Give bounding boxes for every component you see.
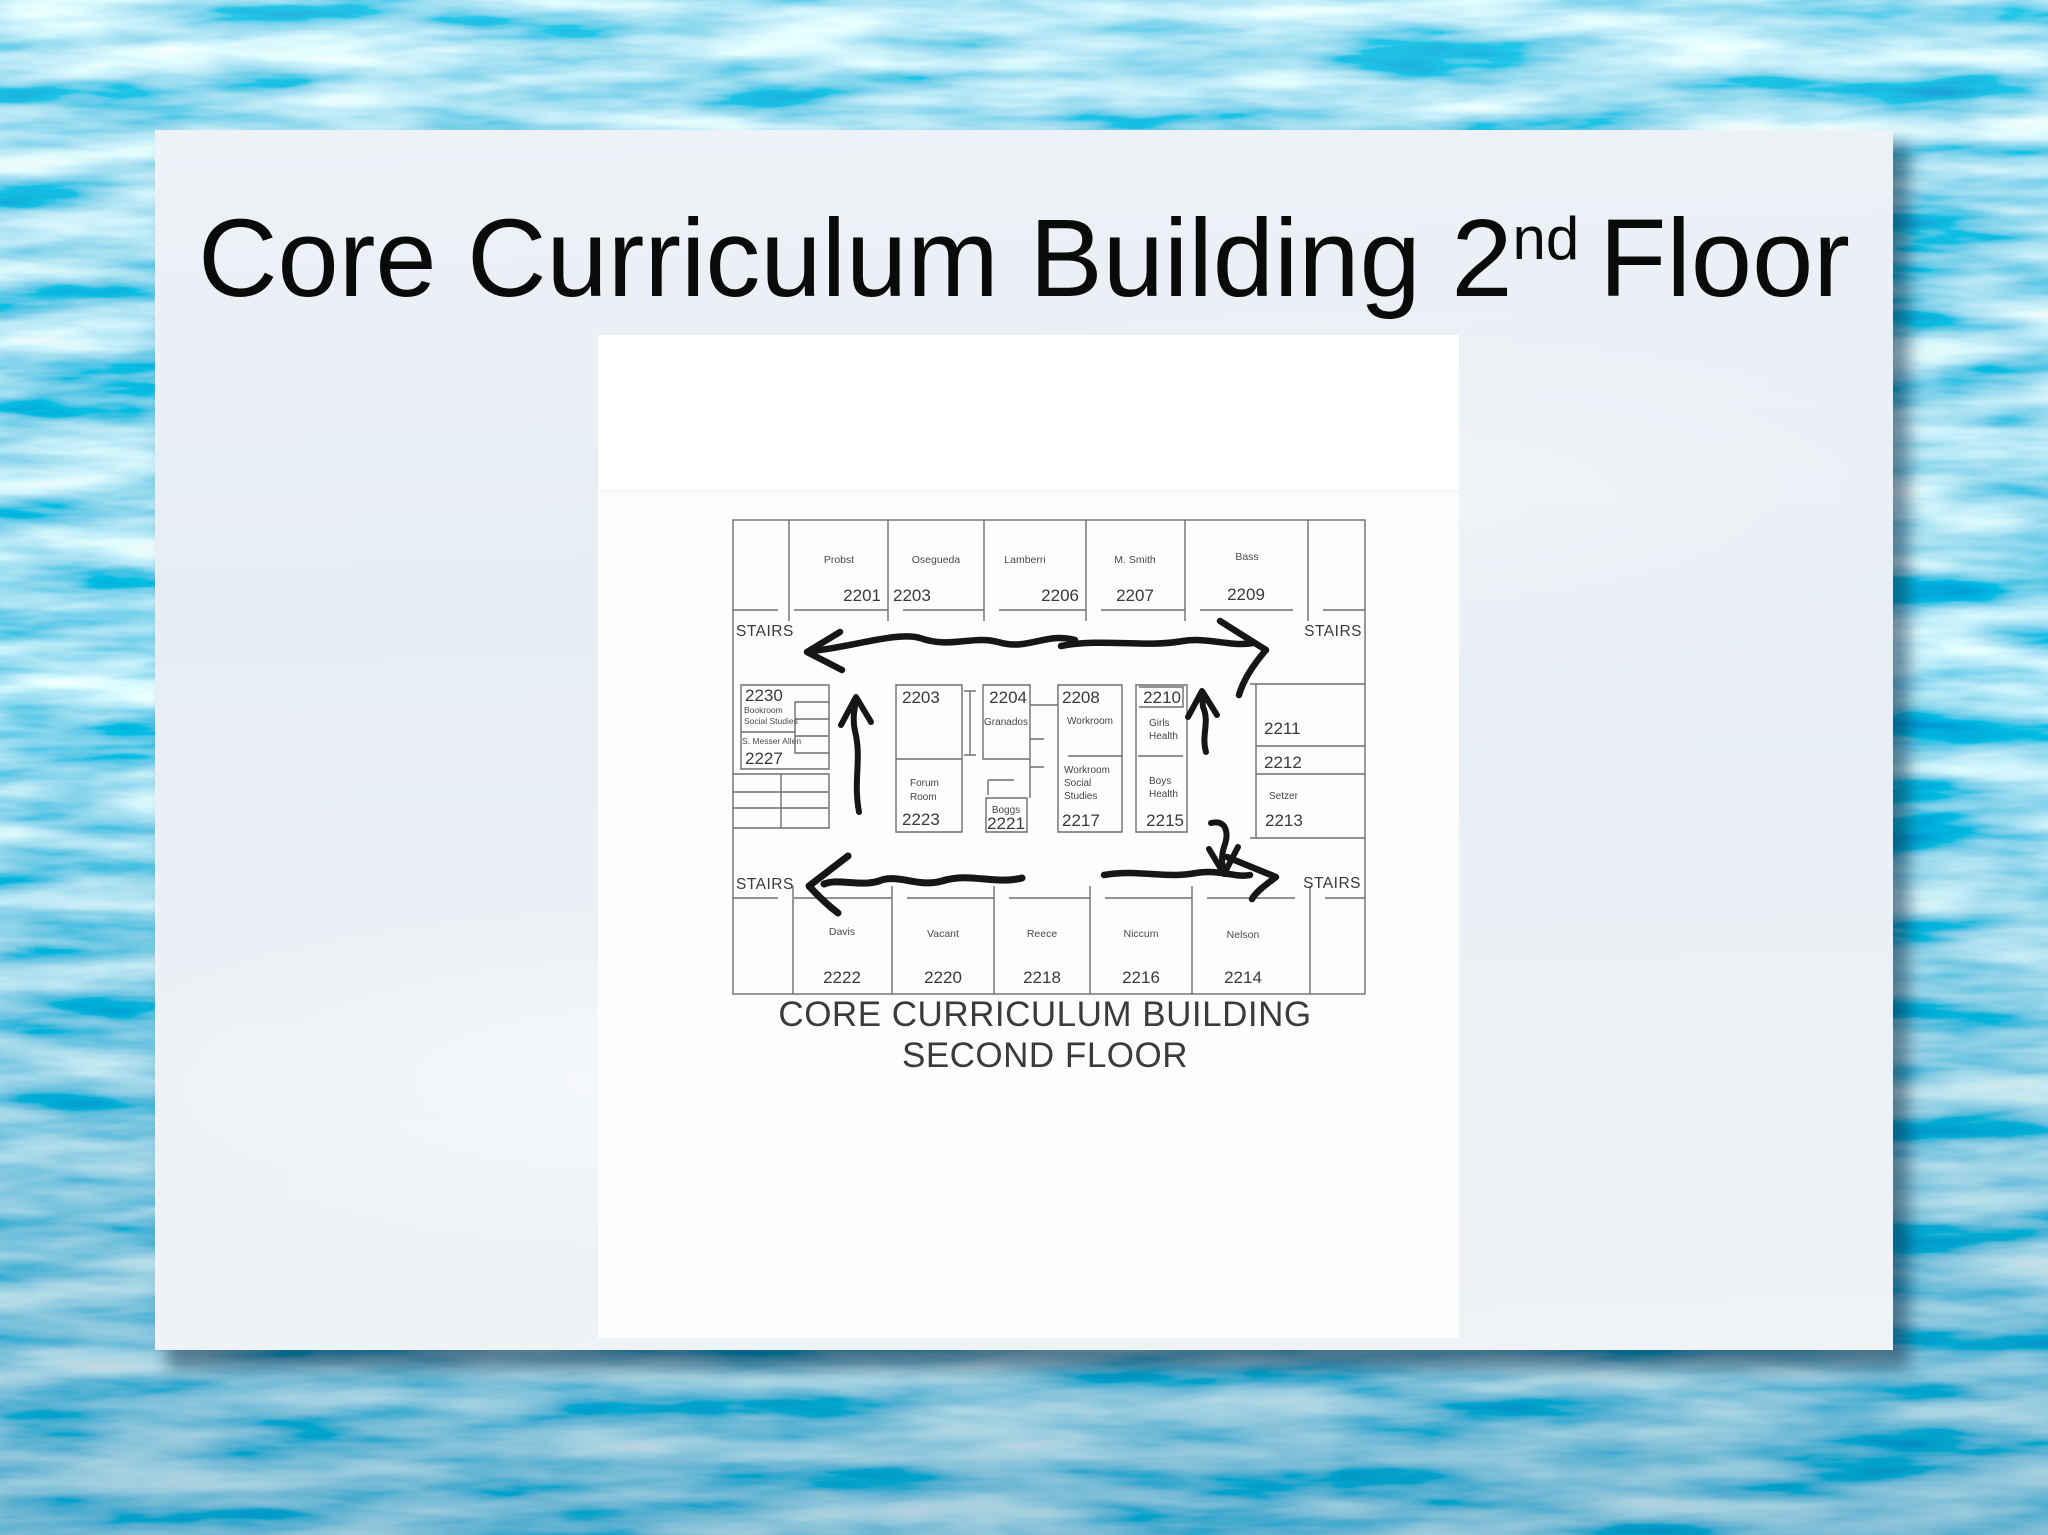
floorplan-caption-line2: SECOND FLOOR: [902, 1036, 1188, 1075]
room-2201-number: 2201: [843, 586, 881, 605]
screenshot-root: Core Curriculum Building 2ndFloor: [0, 0, 2048, 1535]
room-2201-occupant: Probst: [824, 554, 854, 566]
room-2210-number: 2210: [1143, 688, 1181, 707]
room-2230-label-line2: Social Studies: [744, 716, 798, 726]
slide-title-text: Core Curriculum Building 2: [198, 197, 1512, 320]
floorplan-paper: STAIRS STAIRS STAIRS STAIRS Probst 2201 …: [598, 335, 1459, 1338]
girls-health-line2: Health: [1149, 731, 1178, 742]
stairs-label-bottom-left: STAIRS: [736, 876, 794, 893]
room-2222-occupant: Davis: [829, 926, 855, 938]
room-2211-number: 2211: [1264, 719, 1301, 738]
room-2203-center-number: 2203: [902, 688, 940, 707]
room-2206-occupant: Lamberri: [1004, 554, 1045, 566]
slide-title-superscript: nd: [1513, 205, 1580, 272]
room-2222-number: 2222: [823, 968, 861, 987]
workroom-label: Workroom: [1067, 716, 1113, 727]
room-2216-number: 2216: [1122, 968, 1160, 987]
room-2204-number: 2204: [989, 688, 1027, 707]
room-2209-occupant: Bass: [1235, 551, 1258, 563]
room-2209-number: 2209: [1227, 585, 1265, 604]
room-2218-number: 2218: [1023, 968, 1061, 987]
presentation-slide: Core Curriculum Building 2ndFloor: [155, 130, 1893, 1350]
workroom-ss-line2: Social: [1064, 778, 1091, 789]
room-2206-number: 2206: [1041, 586, 1079, 605]
granados-label: Granados: [984, 717, 1028, 728]
workroom-ss-line3: Studies: [1064, 791, 1097, 802]
messer-allen-label: S. Messer Allen: [742, 736, 801, 746]
floorplan-image: STAIRS STAIRS STAIRS STAIRS Probst 2201 …: [598, 335, 1459, 1338]
forum-room-line1: Forum: [910, 778, 939, 789]
room-2208-number: 2208: [1062, 688, 1100, 707]
room-2230-label-line1: Bookroom: [744, 705, 783, 715]
forum-room-line2: Room: [910, 792, 937, 803]
room-2207-occupant: M. Smith: [1114, 554, 1156, 566]
room-2223-number: 2223: [902, 810, 940, 829]
slide-title: Core Curriculum Building 2ndFloor: [155, 196, 1893, 323]
floorplan-caption-line1: CORE CURRICULUM BUILDING: [778, 995, 1311, 1034]
room-2203-top-number: 2203: [893, 586, 931, 605]
room-2216-occupant: Niccum: [1123, 928, 1158, 940]
stairs-label-top-right: STAIRS: [1304, 623, 1362, 640]
room-2227-number: 2227: [745, 749, 783, 768]
stairs-label-top-left: STAIRS: [736, 623, 794, 640]
room-2221-number: 2221: [987, 814, 1025, 833]
room-2207-number: 2207: [1116, 586, 1154, 605]
room-2214-occupant: Nelson: [1227, 929, 1260, 941]
boys-health-line1: Boys: [1149, 776, 1171, 787]
boys-health-line2: Health: [1149, 789, 1178, 800]
room-2218-occupant: Reece: [1027, 928, 1058, 940]
room-2213-number: 2213: [1265, 811, 1303, 830]
room-2217-number: 2217: [1062, 811, 1100, 830]
room-2230-number: 2230: [745, 686, 783, 705]
room-2215-number: 2215: [1146, 811, 1184, 830]
slide-title-text-end: Floor: [1599, 197, 1850, 320]
setzer-label: Setzer: [1269, 791, 1299, 802]
room-2220-occupant: Vacant: [927, 928, 959, 940]
room-2220-number: 2220: [924, 968, 962, 987]
stairs-label-bottom-right: STAIRS: [1303, 875, 1361, 892]
paper-top-strip: [598, 335, 1459, 491]
workroom-ss-line1: Workroom: [1064, 765, 1110, 776]
room-2214-number: 2214: [1224, 968, 1262, 987]
girls-health-line1: Girls: [1149, 718, 1170, 729]
room-2212-number: 2212: [1264, 753, 1302, 772]
room-2203-top-occupant: Osegueda: [912, 554, 961, 566]
